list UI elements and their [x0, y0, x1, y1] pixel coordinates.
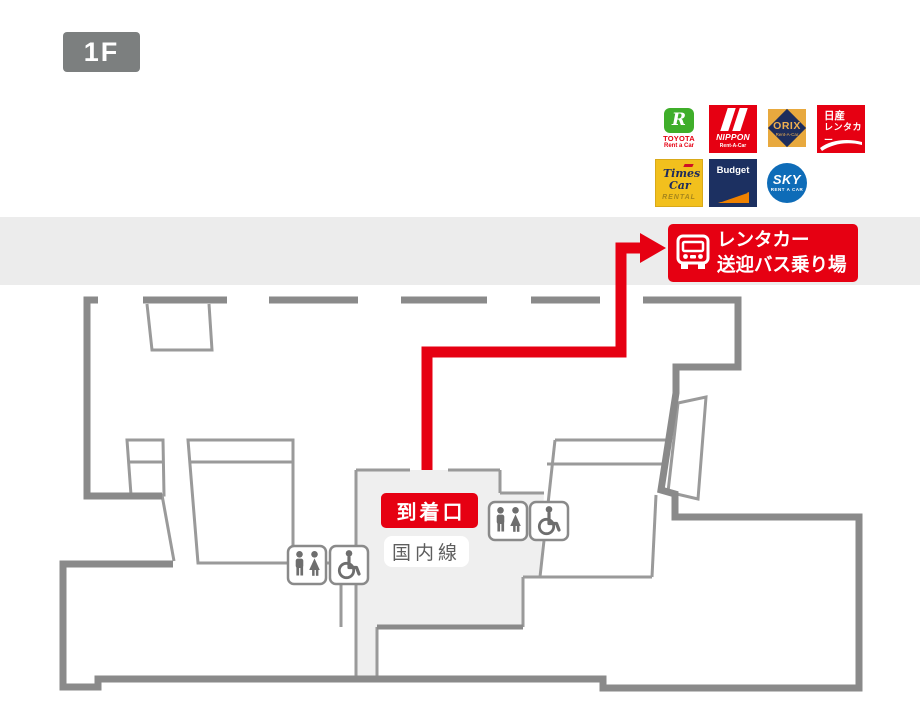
budget-triangle — [709, 187, 757, 207]
domestic-line-text: 国内線 — [392, 543, 461, 564]
logo-orix-rent-a-car: ORIX Rent-A-Car — [763, 105, 811, 153]
bus-icon — [676, 234, 710, 272]
shuttle-sign-line1: レンタカー — [717, 228, 847, 253]
logo-toyota-rent-a-car: R TOYOTA Rent a Car — [655, 105, 703, 153]
wheelchair-icon — [530, 502, 568, 540]
nissan-swoosh — [817, 135, 865, 153]
restroom-icon — [489, 502, 527, 540]
restroom-icon — [288, 546, 326, 584]
logo-nippon-rent-a-car: NIPPON Rent-A-Car — [709, 105, 757, 153]
logo-sky-rent-a-car: SKY RENT A CAR — [763, 159, 811, 207]
shuttle-sign-line2: 送迎バス乗り場 — [717, 253, 847, 278]
logo-nissan-rent-a-car: 日産 レンタカー — [817, 105, 865, 153]
logo-budget: Budget — [709, 159, 757, 207]
logo-times-car-rental: Times Car RENTAL — [655, 159, 703, 207]
arrival-gate-label: 到着口 — [381, 493, 478, 528]
terminal-map-page: 1F — [0, 0, 920, 725]
toyota-mark: R — [664, 108, 694, 133]
wheelchair-icon — [330, 546, 368, 584]
route-arrow — [427, 233, 666, 470]
rental-shuttle-sign: レンタカー 送迎バス乗り場 — [668, 224, 858, 282]
arrival-gate-text: 到着口 — [397, 496, 466, 525]
domestic-line-label: 国内線 — [384, 536, 469, 567]
